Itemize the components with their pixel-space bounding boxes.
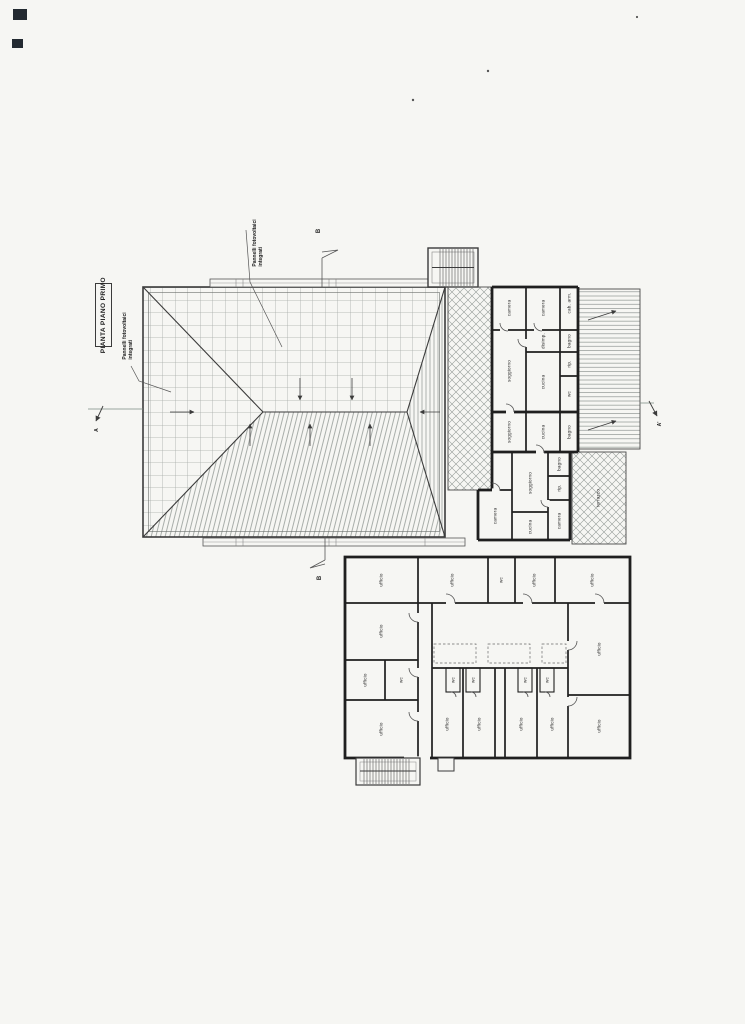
section-marker-b-top: B — [316, 229, 322, 233]
drawing-title: PIANTA PIANO PRIMO — [100, 277, 107, 353]
section-marker-a-left: A — [94, 428, 100, 432]
hip-roof — [143, 287, 445, 537]
annotation-line: integrati — [128, 312, 134, 359]
scanned-floor-plan-page: PIANTA PIANO PRIMO Pannelli fotovoltaici… — [0, 0, 745, 1024]
bottom-wing-walls — [345, 557, 630, 758]
scan-artifacts — [12, 9, 638, 101]
staircase-bottom — [356, 758, 454, 785]
annotation-line: integrati — [258, 219, 264, 266]
annotation-pv-panels-left: Pannelli fotovoltaici integrati — [122, 312, 134, 359]
floor-plan-linework — [0, 0, 745, 1024]
right-wing-walls — [478, 287, 578, 540]
drawing-title-box: PIANTA PIANO PRIMO — [95, 283, 112, 347]
staircase-top — [428, 248, 478, 287]
section-marker-a-right: A' — [657, 422, 663, 427]
annotation-pv-panels-top: Pannelli fotovoltaici integrati — [252, 219, 264, 266]
terrace-label: terrazzo — [596, 489, 601, 507]
section-marker-b-bottom: B — [317, 576, 323, 580]
